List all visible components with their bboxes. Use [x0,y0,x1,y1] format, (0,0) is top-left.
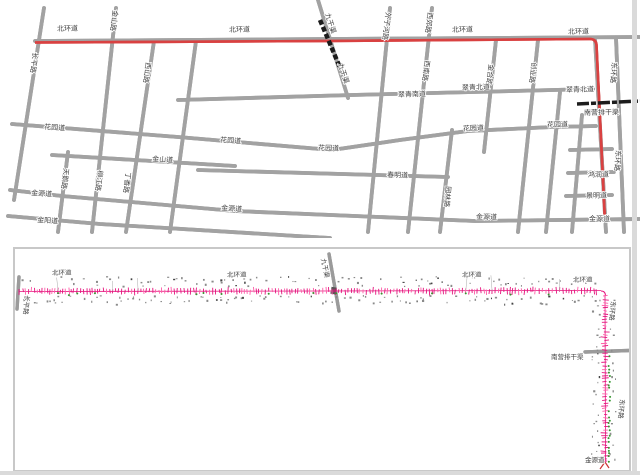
street-label: 西南路 [420,60,431,82]
street-label: 北环道 [462,270,482,279]
street-label: 金山道 [152,154,174,164]
street-label: 金源道 [31,188,53,198]
street-label: 北环道 [573,275,593,284]
street-label: 金源道 [589,214,610,223]
pipeline-survey-panel: 北环道北环道北环道北环道九干渠长平路东环路东环路南营排干渠金源道 [13,247,631,472]
street-label: 金源道 [221,203,243,213]
street-label: 翠青北道 [462,82,490,92]
street-label: 春明道 [387,170,408,180]
street-label: 创业路 [527,62,538,84]
street-label: 长平路 [28,52,39,74]
street-label: 翠青南道 [398,89,426,99]
street-label: 九干渠 [336,62,351,85]
street-label: 花园道 [44,122,66,132]
page-edge-right [632,0,637,475]
street-label: 花园道 [463,123,484,133]
street-labels: 北环道北环道北环道北环道九干渠长平路东环路东环路南营排干渠金源道 [21,258,627,464]
street-label: 北环道 [568,27,589,36]
street-label: 金阳道 [37,215,59,225]
pipeline-band [19,275,616,469]
highlighted-route [35,39,605,222]
street-label: 北环道 [227,270,247,279]
street-label: 东环路 [607,301,618,322]
street-label: 北环道 [229,25,250,34]
street-label: 外子河路 [381,12,393,41]
city-street-map: 北环道北环道北环道北环道九干渠九干渠外子河路西郊路长平路金山路西山路西南路金合路… [0,0,640,238]
street-label: 翠青北道 [566,85,594,94]
street-label: 金源道 [585,455,605,464]
street-label: 西郊路 [423,12,434,34]
street-label: 园林路 [442,186,453,208]
street-label: 金山路 [108,10,119,32]
street-label: 北环道 [52,268,72,277]
street-label: 金源道 [476,212,497,221]
street-label: 南营排干渠 [584,107,619,117]
page: 北环道北环道北环道北环道九干渠九干渠外子河路西郊路长平路金山路西山路西南路金合路… [0,0,640,475]
street-label: 景明道 [586,191,607,200]
street-label: 东环路 [616,399,627,420]
street-label: 金合路 [484,64,495,86]
street-label: 柳江路 [93,170,104,192]
road-network [8,0,640,238]
street-label: 天鹅路 [59,168,70,190]
street-label: 花园道 [318,143,339,153]
street-label: 北环道 [452,25,473,34]
street-label: 花园道 [547,120,568,129]
drainage-canal-line [577,101,640,104]
street-label: 长平路 [21,295,32,316]
street-label: 南营排干渠 [551,352,584,361]
pipeline-survey-drawing: 北环道北环道北环道北环道九干渠长平路东环路东环路南营排干渠金源道 [15,249,629,470]
page-edge-bottom [0,471,640,475]
street-label: 鸿润道 [588,170,609,179]
street-label: 北环道 [57,24,78,33]
street-label: 花园道 [220,135,242,145]
